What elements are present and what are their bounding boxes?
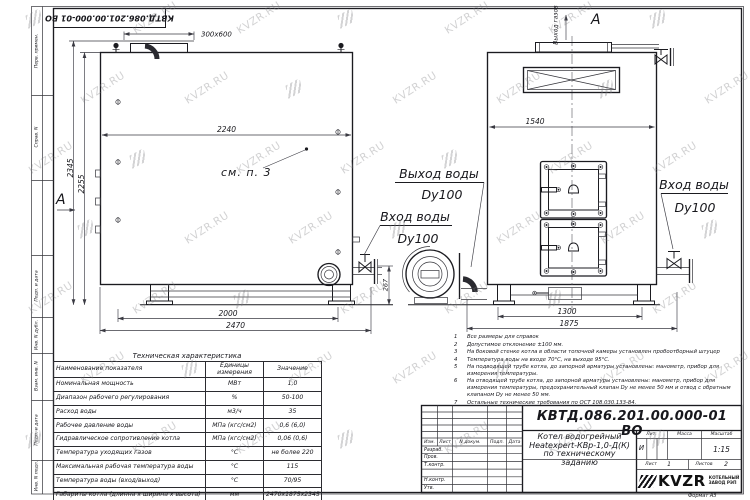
margin-label: Взам. инв. N	[34, 361, 40, 391]
note-text: Допустимое отклонение ±100 мм.	[467, 342, 741, 349]
hatch-opening	[524, 68, 620, 93]
drawing-title: Котел водогрейный Heatexpert-КВр-1,0-Д(К…	[524, 433, 635, 467]
note-item: 3На боковой стенке котла в области топоч…	[454, 349, 741, 356]
water-outlet-dn: Dy100	[422, 187, 463, 202]
scale-header: Масштаб	[701, 432, 742, 437]
param-units: °С	[206, 460, 264, 474]
tech-characteristics: Техническая характеристика Наименование …	[53, 352, 321, 500]
dim-height-body: 2255	[77, 174, 86, 193]
param-units: °С	[206, 474, 264, 488]
section-label-a-left: А	[55, 192, 66, 208]
sheet-label: Лист	[640, 462, 662, 467]
callout-see-note-3: см. п. 3	[221, 166, 272, 179]
water-inlet-right-label: Вход воды	[659, 177, 729, 192]
sheets-value: 2	[719, 461, 733, 468]
col-podp: Подп.	[487, 440, 507, 445]
param-name: Рабочее давление воды	[54, 419, 206, 433]
sheet-value: 1	[663, 461, 675, 468]
margin-label: Справ. N	[34, 126, 40, 148]
note-text: На боковой стенке котла в области топочн…	[467, 349, 741, 356]
kvzr-logo-subtext: КОТЕЛЬНЫЙ ЗАВОД РЭП	[709, 476, 740, 486]
inlet-flange	[318, 264, 340, 286]
hinge	[599, 260, 606, 265]
water-inlet-right-dn: Dy100	[675, 200, 716, 215]
table-row: Температура воды (вход/выход)°С70/95	[54, 474, 322, 488]
param-name: Температура воды (вход/выход)	[54, 474, 206, 488]
hinge	[599, 174, 606, 179]
dim-base-outer: 2470	[226, 321, 245, 330]
note-item: 7Остальные технические требования по ОСТ…	[454, 400, 741, 407]
table-row: Максимальная рабочая температура воды°С1…	[54, 460, 322, 474]
note-number: 1	[454, 334, 467, 341]
param-units: МВт	[206, 378, 264, 392]
title-line-3: по техническому заданию	[524, 450, 635, 467]
note-text: Температура воды на входе 70°С, на выход…	[467, 357, 741, 364]
blower-fan	[403, 247, 488, 304]
col-data: Дата	[506, 440, 523, 445]
format-label: Формат А3	[688, 493, 716, 499]
note-item: 6На отводящей трубе котла, до запорной а…	[454, 378, 741, 399]
ash-door	[533, 288, 582, 300]
dim-front-base-outer: 1875	[559, 319, 578, 328]
param-name: Габариты котла (длинна х ширина х высота…	[54, 488, 206, 500]
latch-icon	[569, 243, 579, 251]
table-row: Диапазон рабочего регулирования%50-100	[54, 391, 322, 405]
scale-value: 1:15	[701, 445, 742, 454]
tech-table-title: Техническая характеристика	[53, 352, 321, 361]
table-row: Температура уходящих газов°Сне более 220	[54, 446, 322, 460]
dim-pipe-height: 267	[382, 278, 390, 291]
gas-outlet-label: Выход газов	[553, 5, 560, 45]
dim-height-total: 2345	[66, 158, 75, 177]
dim-chimney: 300x600	[201, 31, 232, 39]
note-text: На подводящей трубе котла, до запорной а…	[467, 364, 741, 378]
row-nkontr: Н.контр.	[424, 478, 452, 483]
note-number: 7	[454, 400, 467, 407]
param-value: 0,06 (0,6)	[264, 433, 322, 447]
row-utv: Утв.	[424, 486, 452, 491]
hinge	[599, 232, 606, 237]
corner-stamp-doc-number: КВТД.086.201.00.000-01 ВО	[45, 14, 174, 23]
param-value: 35	[264, 405, 322, 419]
roof-valve-icon	[113, 43, 120, 53]
kvzr-logo-icon	[637, 475, 657, 488]
latch-icon	[569, 185, 579, 193]
lit-header: Лит.	[636, 432, 667, 437]
air-vent-valve	[612, 45, 674, 67]
note-text: Остальные технические требования по ОСТ …	[467, 400, 741, 407]
note-text: На отводящей трубе котла, до запорной ар…	[467, 378, 741, 399]
table-row: Габариты котла (длинна х ширина х высота…	[54, 488, 322, 500]
hinge	[599, 202, 606, 207]
col-doc: N докум.	[452, 440, 488, 445]
tech-col-name: Наименование показателя	[54, 362, 206, 378]
row-razrab: Разраб.	[424, 448, 452, 453]
lit-value: И	[636, 444, 647, 452]
param-value: 50-100	[264, 391, 322, 405]
param-units: °С	[206, 446, 264, 460]
water-inlet-mid-dn: Dy100	[398, 231, 439, 246]
front-view-dimensions: 1540 1300 1875 Выход газов А Выход воды …	[364, 5, 729, 332]
table-row: Гидравлическое сопротивление котлаМПа (к…	[54, 433, 322, 447]
lower-door	[541, 220, 607, 277]
param-value: 115	[264, 460, 322, 474]
col-izm: Изм.	[421, 440, 438, 445]
param-name: Диапазон рабочего регулирования	[54, 391, 206, 405]
note-number: 6	[454, 378, 467, 399]
dim-base-inner: 2000	[218, 309, 237, 318]
margin-label: Подп. и дата	[34, 270, 40, 301]
table-row: Расход водым3/ч35	[54, 405, 322, 419]
margin-label: Инв. N подл.	[34, 461, 40, 491]
note-number: 3	[454, 349, 467, 356]
note-number: 4	[454, 357, 467, 364]
param-units: м3/ч	[206, 405, 264, 419]
note-number: 2	[454, 342, 467, 349]
mass-header: Масса	[667, 432, 702, 437]
upper-door	[541, 162, 607, 219]
dim-front-width: 1540	[525, 117, 544, 126]
note-item: 2Допустимое отклонение ±100 мм.	[454, 342, 741, 349]
note-item: 4Температура воды на входе 70°С, на выхо…	[454, 357, 741, 364]
param-value: 0,6 (6,0)	[264, 419, 322, 433]
param-units: МПа (кгс/см2)	[206, 419, 264, 433]
base-frame	[140, 285, 393, 305]
row-tkontr: Т.контр.	[424, 463, 452, 468]
tech-col-units: Единицы измерения	[206, 362, 264, 378]
margin-label: Подп. и дата	[34, 414, 40, 445]
roof-valve-icon	[338, 43, 345, 53]
row-prov: Пров.	[424, 455, 452, 460]
front-base-frame	[408, 285, 660, 305]
note-item: 5На подводящей трубе котла, до запорной …	[454, 364, 741, 378]
param-value: 1,0	[264, 378, 322, 392]
table-row: Рабочее давление водыМПа (кгс/см2)0,6 (6…	[54, 419, 322, 433]
water-inlet-mid-label: Вход воды	[380, 209, 450, 224]
param-name: Номинальная мощность	[54, 378, 206, 392]
param-value: не более 220	[264, 446, 322, 460]
table-row: Номинальная мощностьМВт1,0	[54, 378, 322, 392]
logo-sub-line2: ЗАВОД РЭП	[709, 481, 740, 486]
manufacturer-logo: KVZR КОТЕЛЬНЫЙ ЗАВОД РЭП	[639, 471, 739, 491]
technical-notes: 1Все размеры для справок 2Допустимое отк…	[454, 334, 741, 407]
water-outlet-label: Выход воды	[399, 166, 479, 181]
note-number: 5	[454, 364, 467, 378]
margin-label: Перв. примен.	[34, 34, 40, 69]
kvzr-logo-text: KVZR	[658, 472, 706, 490]
param-units: %	[206, 391, 264, 405]
side-inlet-valve	[353, 255, 383, 285]
sheets-label: Листов	[691, 462, 717, 467]
margin-label: Инв. N дубл.	[34, 320, 40, 350]
param-name: Температура уходящих газов	[54, 446, 206, 460]
drawing-sheet: Перв. примен. Справ. N Подп. и дата Инв.…	[0, 0, 750, 500]
col-list: Лист	[437, 440, 453, 445]
param-name: Расход воды	[54, 405, 206, 419]
note-item: 1Все размеры для справок	[454, 334, 741, 341]
param-name: Гидравлическое сопротивление котла	[54, 433, 206, 447]
tech-table: Наименование показателя Единицы измерени…	[53, 361, 322, 500]
side-view-dimensions: 2240 2345 2255 А 300x600 2000 2470 267 с…	[55, 31, 393, 335]
param-units: мм	[206, 488, 264, 500]
param-value: 70/95	[264, 474, 322, 488]
dim-front-base-inner: 1300	[557, 307, 576, 316]
front-inlet-valve	[657, 252, 693, 284]
param-units: МПа (кгс/см2)	[206, 433, 264, 447]
dim-top-width: 2240	[217, 125, 236, 134]
tech-col-value: Значение	[264, 362, 322, 378]
note-text: Все размеры для справок	[467, 334, 741, 341]
param-name: Максимальная рабочая температура воды	[54, 460, 206, 474]
section-label-a-top: А	[590, 12, 601, 28]
param-value: 2470х1875х2345	[264, 488, 322, 500]
